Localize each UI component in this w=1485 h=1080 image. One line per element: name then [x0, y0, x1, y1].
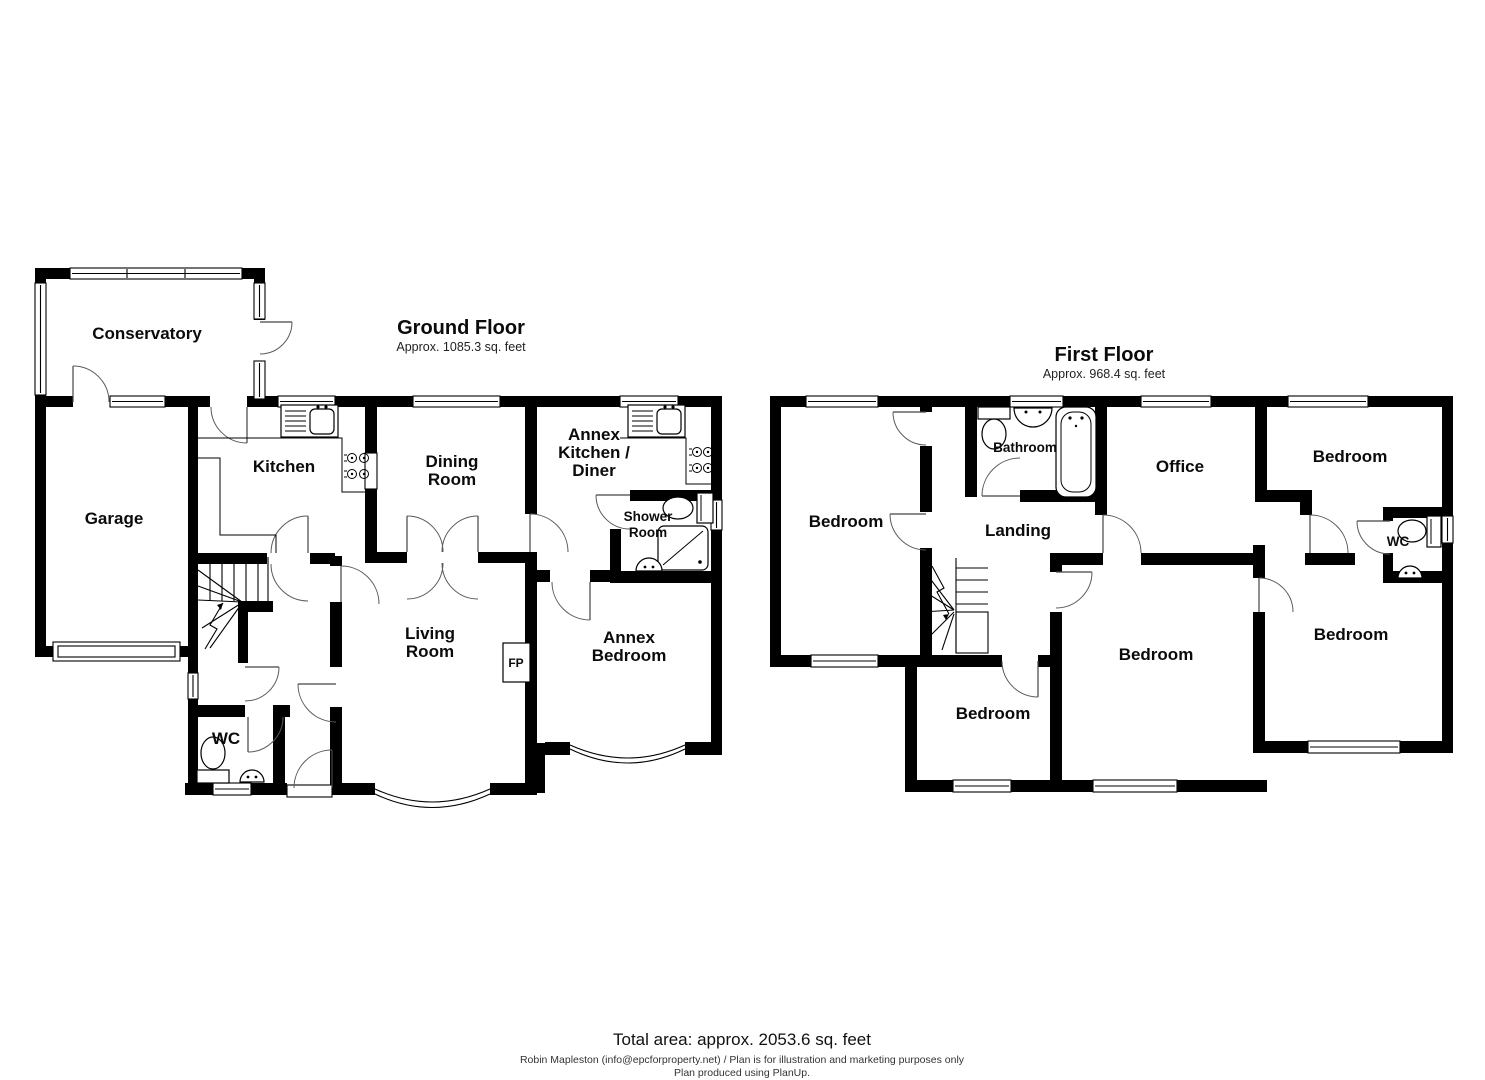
ground-floor-plan: Conservatory Garage Kitchen Dining Room … [35, 268, 722, 808]
room-label-annex-kitchen: Kitchen / [558, 443, 630, 462]
room-label-dining: Room [428, 470, 476, 489]
credit-text: Robin Mapleston (info@epcforproperty.net… [520, 1054, 965, 1066]
ground-floor-title: Ground Floor [397, 317, 525, 339]
room-label-bedroom: Bedroom [1119, 645, 1194, 664]
door [1259, 578, 1293, 612]
door [341, 566, 379, 604]
window [213, 783, 251, 795]
room-label-wc: WC [1387, 534, 1410, 549]
basin-icon [1014, 408, 1052, 427]
fireplace-label: FP [508, 656, 523, 670]
room-label-bedroom: Bedroom [809, 512, 884, 531]
garage-door [53, 642, 180, 661]
window [70, 268, 242, 279]
footer: Total area: approx. 2053.6 sq. feet Robi… [520, 1030, 965, 1079]
produced-text: Plan produced using PlanUp. [674, 1067, 810, 1079]
room-label-garage: Garage [85, 509, 144, 528]
room-label-kitchen: Kitchen [253, 457, 315, 476]
basin-icon [240, 770, 264, 782]
labels: Conservatory Garage Kitchen Dining Room … [85, 324, 673, 748]
walls [35, 268, 722, 795]
door [73, 366, 109, 402]
room-label-dining: Dining [426, 452, 479, 471]
room-label-landing: Landing [985, 521, 1051, 540]
room-label-shower-room: Room [629, 525, 667, 540]
room-label-bathroom: Bathroom [993, 440, 1057, 455]
window [110, 396, 165, 407]
window [35, 283, 46, 395]
room-label-office: Office [1156, 457, 1204, 476]
basin-icon [1398, 566, 1422, 578]
door [1310, 515, 1348, 553]
room-label-bedroom: Bedroom [956, 704, 1031, 723]
floorplan-page: Conservatory Garage Kitchen Dining Room … [0, 0, 1485, 1080]
room-label-annex-bedroom: Annex [603, 628, 656, 647]
labels: Bedroom Bathroom Office Bedroom Landing … [809, 440, 1410, 723]
first-floor-title: First Floor [1055, 344, 1154, 366]
room-label-annex-kitchen: Annex [568, 425, 621, 444]
doors [73, 322, 630, 788]
room-label-living: Room [406, 642, 454, 661]
window [1288, 396, 1368, 407]
door [890, 514, 926, 550]
door [245, 667, 279, 701]
door [893, 412, 926, 445]
door [982, 458, 1020, 496]
window [811, 655, 878, 667]
door [260, 322, 292, 354]
hob-icon [689, 448, 713, 473]
floorplan-canvas: Conservatory Garage Kitchen Dining Room … [0, 0, 1485, 1080]
door [1357, 521, 1390, 554]
french-doors [407, 516, 478, 599]
room-label-wc: WC [212, 729, 240, 748]
door [1056, 572, 1092, 608]
sink-icon [628, 405, 685, 437]
room-label-shower-room: Shower [624, 509, 674, 524]
bay-window [570, 745, 685, 763]
first-floor-area: Approx. 968.4 sq. feet [1043, 367, 1166, 381]
door [552, 582, 590, 620]
ground-floor-area: Approx. 1085.3 sq. feet [396, 340, 526, 354]
room-label-living: Living [405, 624, 455, 643]
bath-icon [1056, 407, 1096, 497]
window [806, 396, 878, 407]
room-label-annex-bedroom: Bedroom [592, 646, 667, 665]
room-label-bedroom: Bedroom [1313, 447, 1388, 466]
room-label-annex-kitchen: Diner [572, 461, 616, 480]
window [254, 361, 265, 399]
door [1103, 515, 1141, 553]
window [1010, 396, 1063, 407]
window [413, 396, 500, 407]
kitchen-counter [620, 438, 711, 484]
window [188, 673, 198, 699]
room-label-conservatory: Conservatory [92, 324, 202, 343]
room-label-bedroom: Bedroom [1314, 625, 1389, 644]
first-floor-plan: Bedroom Bathroom Office Bedroom Landing … [770, 344, 1453, 792]
door [530, 514, 568, 552]
window [1308, 741, 1400, 753]
window [1093, 780, 1177, 792]
total-area-text: Total area: approx. 2053.6 sq. feet [613, 1030, 871, 1049]
kitchen-counter [198, 438, 365, 553]
window [1442, 516, 1453, 543]
window [254, 283, 265, 319]
sink-icon [281, 405, 338, 437]
window [1141, 396, 1211, 407]
door [1002, 661, 1038, 697]
front-door [294, 750, 332, 788]
window [953, 780, 1011, 792]
bay-window [375, 789, 490, 808]
swing-door [271, 516, 308, 601]
